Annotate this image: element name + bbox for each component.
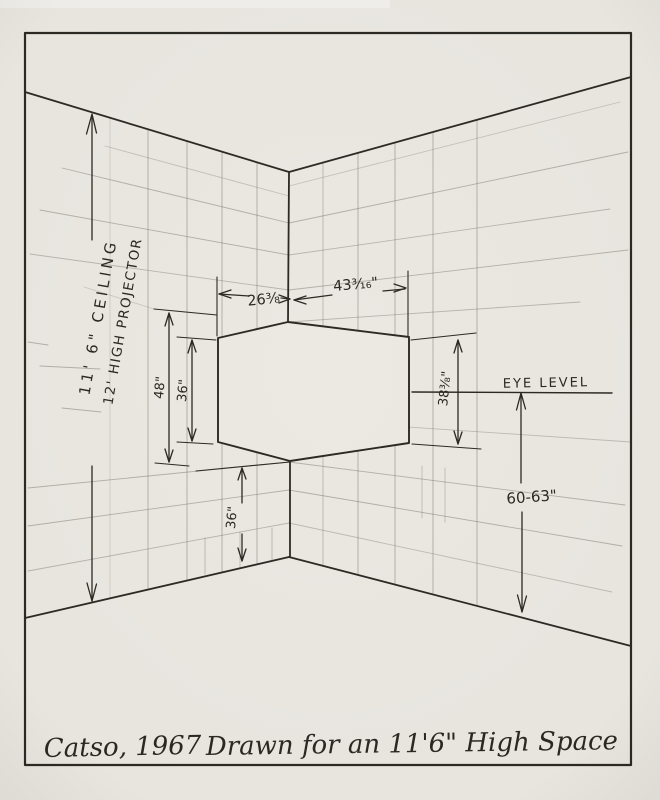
photographed-drawing-sheet: 11' 6" CEILING 12' HIGH PROJECTOR 48" 36…	[0, 0, 660, 800]
photo-vignette	[0, 0, 660, 800]
perspective-drawing: 11' 6" CEILING 12' HIGH PROJECTOR 48" 36…	[0, 0, 660, 800]
